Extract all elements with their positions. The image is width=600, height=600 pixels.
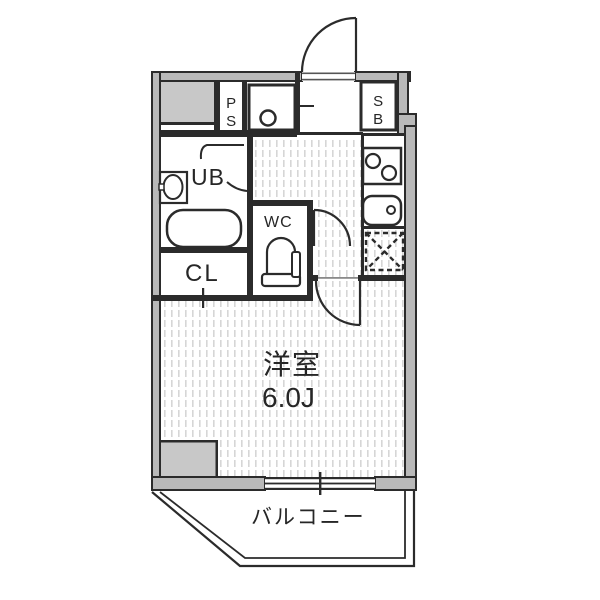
right-wall-lower <box>405 126 416 490</box>
label-room-size: 6.0J <box>262 383 315 412</box>
floorplan-canvas: PS SB UB WC CL 洋室 6.0J バルコニー <box>0 0 600 600</box>
cl-bottom-wall <box>152 295 313 301</box>
entrance-threshold-inner <box>302 79 355 81</box>
label-pipe-space: PS <box>223 95 239 131</box>
hallway-floor <box>253 137 361 203</box>
left-wall <box>152 72 160 490</box>
counter-end-line <box>361 226 405 229</box>
common-area-edge <box>152 122 215 125</box>
toilet-handle-icon <box>292 252 300 277</box>
wc-top-wall <box>253 200 313 206</box>
washing-machine-drain-icon <box>261 111 276 126</box>
bottom-wall-left <box>152 477 265 490</box>
kitchen-top-line <box>361 133 405 136</box>
closet-door-mark <box>202 288 204 308</box>
washbasin-bowl-icon <box>164 175 183 199</box>
label-room-name: 洋室 <box>263 350 321 379</box>
corner-block-edge-top <box>152 440 218 443</box>
label-balcony: バルコニー <box>251 507 366 529</box>
genkan-step-line <box>297 132 363 135</box>
entrance-threshold-outer <box>302 73 355 75</box>
washbasin-faucet-icon <box>159 184 164 190</box>
label-wc: WC <box>264 215 293 232</box>
ps-wm-divider <box>242 80 247 134</box>
toilet-bowl-icon <box>267 238 295 278</box>
room-doorway-header <box>318 277 358 279</box>
bottom-wall-right <box>375 477 416 490</box>
sink-drain-icon <box>387 206 395 214</box>
wc-right-wall <box>307 200 313 301</box>
bathtub <box>167 210 241 247</box>
entrance-opening <box>302 72 355 81</box>
label-shoe-box: SB <box>370 93 386 129</box>
ub-wc-left-wall <box>247 130 253 301</box>
room-top-wall-stub <box>307 275 318 281</box>
room-top-wall-right <box>358 275 405 281</box>
hallway-floor-lower <box>313 200 361 278</box>
ps-left-wall <box>214 80 220 134</box>
stove-burner-icon-1 <box>366 154 380 168</box>
label-unit-bath: UB <box>191 166 225 190</box>
stove-burner-icon-2 <box>382 166 396 180</box>
label-closet: CL <box>185 262 220 287</box>
top-wall-left <box>152 72 302 81</box>
window-center-tick <box>319 472 321 495</box>
